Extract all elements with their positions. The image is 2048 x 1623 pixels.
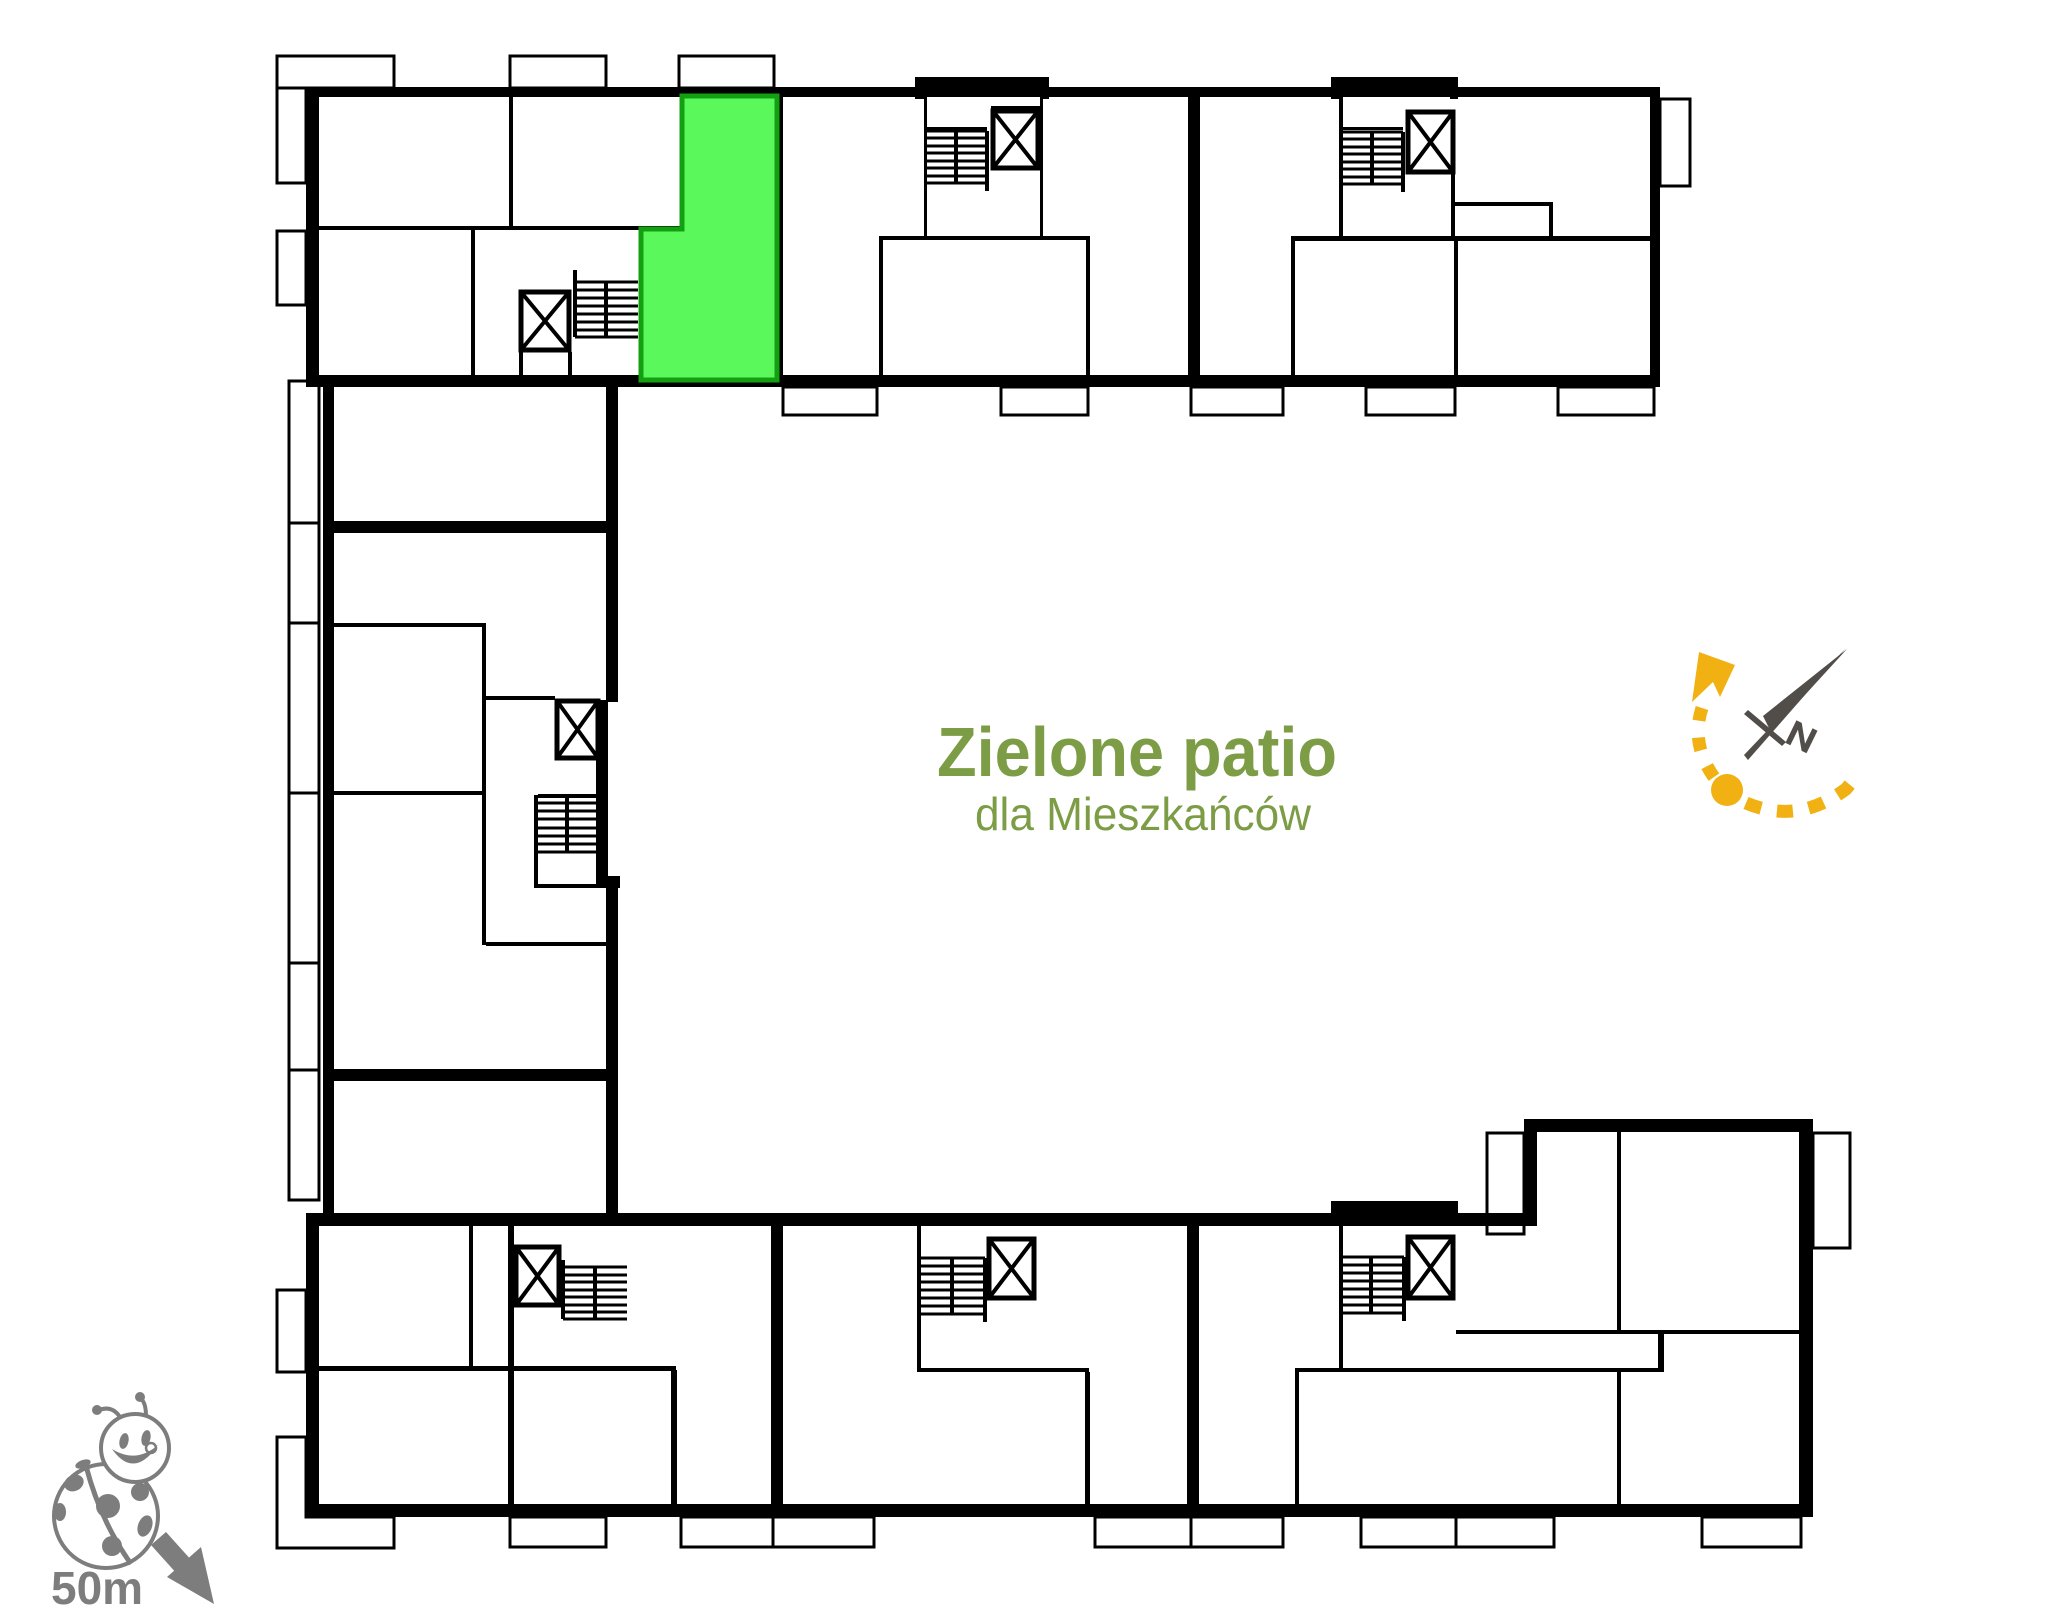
svg-text:Zielone patio: Zielone patio — [937, 713, 1337, 791]
svg-text:dla Mieszkańców: dla Mieszkańców — [975, 788, 1312, 840]
svg-text:50m: 50m — [51, 1562, 143, 1614]
